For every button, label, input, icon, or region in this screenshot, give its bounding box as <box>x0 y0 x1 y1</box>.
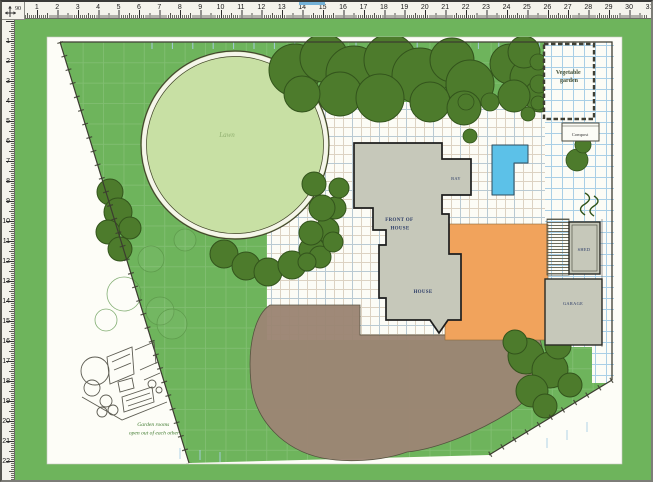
compost-bin[interactable]: Compost <box>562 123 599 141</box>
v-ruler-number: 16 <box>2 338 10 345</box>
corner-label: 90 <box>15 6 21 12</box>
v-ruler-number: 9 <box>6 198 10 205</box>
horizontal-ruler[interactable]: 1234567891011121314151617181920212223242… <box>24 2 653 19</box>
house-label: HOUSE <box>413 290 432 295</box>
h-ruler-number: 21 <box>441 4 449 11</box>
h-ruler-number: 5 <box>117 4 121 11</box>
h-ruler-number: 25 <box>523 4 531 11</box>
h-ruler-number: 19 <box>400 4 408 11</box>
h-ruler-number: 18 <box>380 4 388 11</box>
v-ruler-number: 15 <box>2 318 10 325</box>
h-ruler-number: 4 <box>96 4 100 11</box>
v-ruler-number: 12 <box>2 258 10 265</box>
h-ruler-number: 30 <box>625 4 633 11</box>
h-ruler-number: 3 <box>76 4 80 11</box>
h-ruler-number: 17 <box>360 4 368 11</box>
h-ruler-number: 16 <box>339 4 347 11</box>
v-ruler-number: 20 <box>2 418 10 425</box>
garage-label: GARAGE <box>563 301 583 306</box>
h-ruler-number: 26 <box>543 4 551 11</box>
h-ruler-number: 13 <box>278 4 286 11</box>
tree-cluster-top[interactable] <box>269 34 494 125</box>
app-window: Lawn <box>0 0 653 482</box>
h-ruler-number: 2 <box>55 4 59 11</box>
v-ruler-number: 14 <box>2 298 10 305</box>
h-ruler-number: 23 <box>482 4 490 11</box>
h-ruler-number: 14 <box>298 4 306 11</box>
v-ruler-number: 2 <box>6 58 10 65</box>
vertical-ruler[interactable]: 12345678910111213141516171819202122 <box>2 19 15 482</box>
ruler-origin-button[interactable]: 90 <box>2 2 25 20</box>
h-ruler-number: 15 <box>319 4 327 11</box>
garage[interactable]: GARAGE <box>545 279 602 345</box>
bay-label: BAY <box>451 176 461 181</box>
shed-label: SHED <box>578 247 591 252</box>
h-ruler-number: 20 <box>421 4 429 11</box>
h-ruler-number: 1 <box>35 4 39 11</box>
v-ruler-number: 18 <box>2 378 10 385</box>
v-ruler-number: 7 <box>6 158 10 165</box>
h-ruler-number: 11 <box>237 4 244 11</box>
h-ruler-number: 24 <box>503 4 511 11</box>
compost-label: Compost <box>572 132 589 137</box>
lawn-label: Lawn <box>218 131 235 139</box>
h-ruler-number: 8 <box>178 4 182 11</box>
h-ruler-number: 12 <box>257 4 265 11</box>
h-ruler-number: 29 <box>605 4 613 11</box>
hatch-steps[interactable] <box>547 219 569 275</box>
crosshair-icon: 90 <box>3 3 23 18</box>
v-ruler-number: 5 <box>6 118 10 125</box>
guide-marker[interactable] <box>299 2 325 5</box>
drawing-canvas[interactable]: Lawn <box>2 2 653 482</box>
v-ruler-number: 22 <box>2 458 10 465</box>
v-ruler-number: 1 <box>6 38 10 45</box>
v-ruler-number: 10 <box>2 218 10 225</box>
shed[interactable]: SHED <box>569 222 600 274</box>
v-ruler-number: 4 <box>6 98 10 105</box>
v-ruler-number: 17 <box>2 358 10 365</box>
h-ruler-number: 28 <box>584 4 592 11</box>
h-ruler-number: 9 <box>198 4 202 11</box>
v-ruler-number: 21 <box>2 438 10 445</box>
h-ruler-number: 7 <box>157 4 161 11</box>
v-ruler-number: 13 <box>2 278 10 285</box>
v-ruler-number: 19 <box>2 398 10 405</box>
v-ruler-number: 8 <box>6 178 10 185</box>
h-ruler-number: 10 <box>217 4 225 11</box>
h-ruler-number: 27 <box>564 4 572 11</box>
v-ruler-number: 6 <box>6 138 10 145</box>
h-ruler-number: 6 <box>137 4 141 11</box>
h-ruler-number: 31 <box>646 4 653 11</box>
vegetable-garden[interactable]: Vegetable garden <box>544 44 594 119</box>
v-ruler-number: 3 <box>6 78 10 85</box>
h-ruler-number: 22 <box>462 4 470 11</box>
v-ruler-number: 11 <box>3 238 10 245</box>
